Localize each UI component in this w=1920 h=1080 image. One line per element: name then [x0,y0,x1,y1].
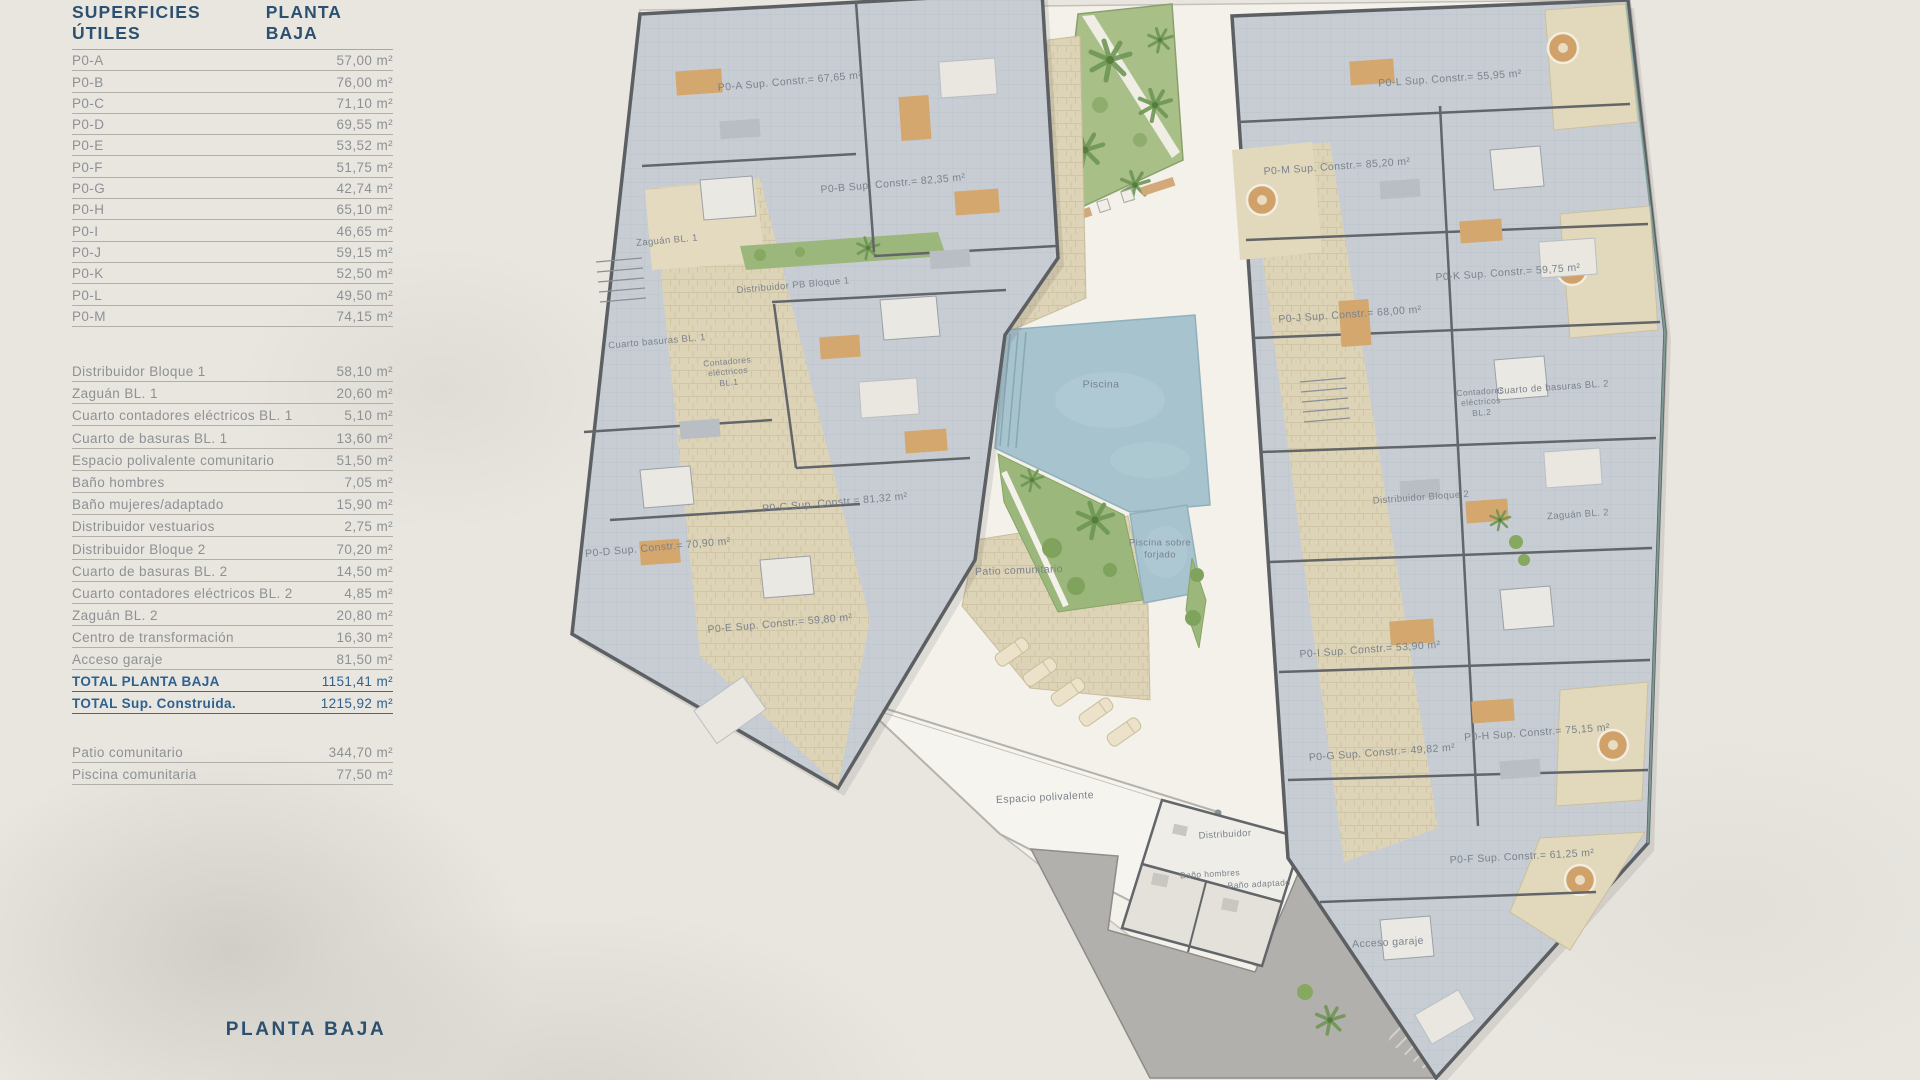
table-row: Cuarto de basuras BL. 113,60 m² [72,426,393,448]
table-row: Baño hombres7,05 m² [72,471,393,493]
row-label: Espacio polivalente comunitario [72,453,274,470]
table-row: Cuarto de basuras BL. 214,50 m² [72,560,393,582]
row-value: 15,90 m² [337,497,393,514]
row-label: Cuarto contadores eléctricos BL. 1 [72,408,293,425]
table-row: P0-E53,52 m² [72,135,393,156]
row-label: P0-G [72,181,105,198]
row-label: Cuarto contadores eléctricos BL. 2 [72,586,293,603]
row-value: 46,65 m² [337,224,393,241]
row-value: 7,05 m² [344,475,393,492]
table-row: Distribuidor Bloque 270,20 m² [72,537,393,559]
row-value: 59,15 m² [337,245,393,262]
row-value: 2,75 m² [344,519,393,536]
row-label: Zaguán BL. 2 [72,608,158,625]
row-label: P0-M [72,309,106,326]
outdoor-areas-list: Patio comunitario344,70 m² Piscina comun… [72,741,393,785]
row-value: 57,00 m² [337,53,393,70]
row-label: P0-L [72,288,102,305]
row-label: P0-B [72,75,104,92]
row-value: 16,30 m² [337,630,393,647]
row-label: P0-F [72,160,103,177]
table-row: P0-J59,15 m² [72,242,393,263]
row-value: 52,50 m² [337,266,393,283]
row-value: 14,50 m² [337,564,393,581]
row-value: 344,70 m² [329,745,393,762]
table-row: Piscina comunitaria77,50 m² [72,763,393,785]
table-row: Zaguán BL. 220,80 m² [72,604,393,626]
row-value: 1151,41 m² [322,674,393,691]
row-label: Acceso garaje [72,652,163,669]
row-value: 81,50 m² [337,652,393,669]
common-areas-list: Distribuidor Bloque 158,10 m² Zaguán BL.… [72,360,393,715]
row-label: TOTAL PLANTA BAJA [72,674,220,691]
row-label: P0-E [72,138,104,155]
row-value: 13,60 m² [337,431,393,448]
total-row: TOTAL Sup. Construida.1215,92 m² [72,692,393,714]
table-row: P0-H65,10 m² [72,199,393,220]
surfaces-panel: SUPERFICIES ÚTILES PLANTA BAJA P0-A57,00… [72,2,393,785]
table-row: P0-K52,50 m² [72,263,393,284]
row-value: 51,50 m² [337,453,393,470]
table-row: Distribuidor vestuarios2,75 m² [72,515,393,537]
row-label: Piscina comunitaria [72,767,197,784]
table-row: Cuarto contadores eléctricos BL. 24,85 m… [72,582,393,604]
row-value: 42,74 m² [337,181,393,198]
table-row: P0-I46,65 m² [72,220,393,241]
row-label: Cuarto de basuras BL. 1 [72,431,228,448]
table-row: Espacio polivalente comunitario51,50 m² [72,449,393,471]
panel-header: SUPERFICIES ÚTILES PLANTA BAJA [72,2,393,50]
row-value: 70,20 m² [337,542,393,559]
row-label: TOTAL Sup. Construida. [72,696,236,713]
row-value: 20,60 m² [337,386,393,403]
table-row: P0-G42,74 m² [72,178,393,199]
row-label: P0-K [72,266,104,283]
row-label: Patio comunitario [72,745,183,762]
table-row: P0-F51,75 m² [72,156,393,177]
row-value: 71,10 m² [337,96,393,113]
row-label: Baño mujeres/adaptado [72,497,224,514]
table-row: Patio comunitario344,70 m² [72,741,393,763]
row-label: Zaguán BL. 1 [72,386,158,403]
table-row: P0-B76,00 m² [72,71,393,92]
table-row: Cuarto contadores eléctricos BL. 15,10 m… [72,404,393,426]
row-value: 4,85 m² [344,586,393,603]
row-value: 74,15 m² [337,309,393,326]
table-row: P0-A57,00 m² [72,50,393,71]
panel-title: SUPERFICIES ÚTILES [72,2,266,44]
table-row: Baño mujeres/adaptado15,90 m² [72,493,393,515]
row-value: 76,00 m² [337,75,393,92]
row-value: 1215,92 m² [321,696,393,713]
row-label: Cuarto de basuras BL. 2 [72,564,228,581]
row-label: P0-I [72,224,98,241]
table-row: P0-D69,55 m² [72,114,393,135]
row-value: 49,50 m² [337,288,393,305]
row-value: 65,10 m² [337,202,393,219]
row-label: P0-J [72,245,101,262]
table-row: Zaguán BL. 120,60 m² [72,382,393,404]
row-value: 20,80 m² [337,608,393,625]
row-value: 77,50 m² [337,767,393,784]
panel-subtitle: PLANTA BAJA [266,2,393,44]
row-value: 51,75 m² [337,160,393,177]
table-row: P0-C71,10 m² [72,93,393,114]
total-row: TOTAL PLANTA BAJA1151,41 m² [72,670,393,692]
table-row: P0-L49,50 m² [72,284,393,305]
row-value: 58,10 m² [337,364,393,381]
row-value: 5,10 m² [344,408,393,425]
row-label: Baño hombres [72,475,165,492]
table-row: Centro de transformación16,30 m² [72,626,393,648]
plan-sheet: P0-A Sup. Constr.= 67,65 m² P0-B Sup. Co… [0,0,1920,1080]
table-row: P0-M74,15 m² [72,306,393,327]
row-label: P0-H [72,202,104,219]
row-value: 53,52 m² [337,138,393,155]
table-row: Distribuidor Bloque 158,10 m² [72,360,393,382]
row-label: P0-C [72,96,104,113]
row-label: P0-D [72,117,104,134]
table-row: Acceso garaje81,50 m² [72,648,393,670]
row-label: Distribuidor Bloque 2 [72,542,206,559]
row-label: Centro de transformación [72,630,234,647]
row-label: Distribuidor vestuarios [72,519,215,536]
row-value: 69,55 m² [337,117,393,134]
sheet-title: PLANTA BAJA [226,1019,387,1041]
row-label: Distribuidor Bloque 1 [72,364,206,381]
apartments-list: P0-A57,00 m² P0-B76,00 m² P0-C71,10 m² P… [72,50,393,327]
row-label: P0-A [72,53,104,70]
